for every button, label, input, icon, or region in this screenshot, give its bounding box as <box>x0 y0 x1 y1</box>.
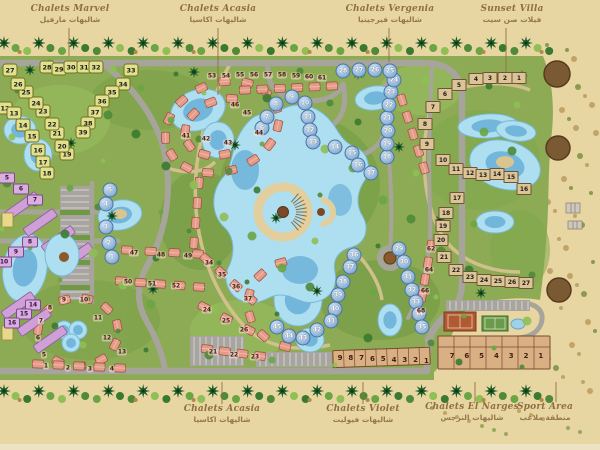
label-text-ar: شاليهات فيرجينيا <box>325 15 455 24</box>
roundabout-mound <box>384 252 396 264</box>
label-text-ar: شاليهات اكاسيا <box>157 415 287 424</box>
label-sunset-villa: Sunset Villa فيلات صن سيت <box>447 4 577 24</box>
label-text-en: Chalets Acasia <box>157 404 287 414</box>
label-chalets-marvel: Chalets Marvel شاليهات مارفيل <box>5 4 135 24</box>
label-text-en: Chalets Acasia <box>153 4 283 14</box>
label-chalets-acasia-top: Chalets Acasia شاليهات اكاسيا <box>153 4 283 24</box>
site-plan-graphic <box>0 0 600 450</box>
resort-master-plan-map: Chalets Marvel شاليهات مارفيل Chalets Ac… <box>0 0 600 450</box>
label-text-ar: منطقة ملاعب <box>480 413 600 422</box>
label-text-en: Chalets Vergenia <box>325 4 455 14</box>
label-text-en: Sunset Villa <box>447 4 577 14</box>
label-chalets-acasia-bottom: Chalets Acasia شاليهات اكاسيا <box>157 404 287 424</box>
label-text-ar: شاليهات اكاسيا <box>153 15 283 24</box>
label-chalets-vergenia: Chalets Vergenia شاليهات فيرجينيا <box>325 4 455 24</box>
label-text-en: Sport Area <box>480 402 600 412</box>
label-text-ar: شاليهات مارفيل <box>5 15 135 24</box>
label-text-ar: فيلات صن سيت <box>447 15 577 24</box>
label-text-en: Chalets Marvel <box>5 4 135 14</box>
page-edge <box>0 444 600 450</box>
label-sport-area: Sport Area منطقة ملاعب <box>480 402 600 422</box>
pool-island <box>59 252 69 262</box>
